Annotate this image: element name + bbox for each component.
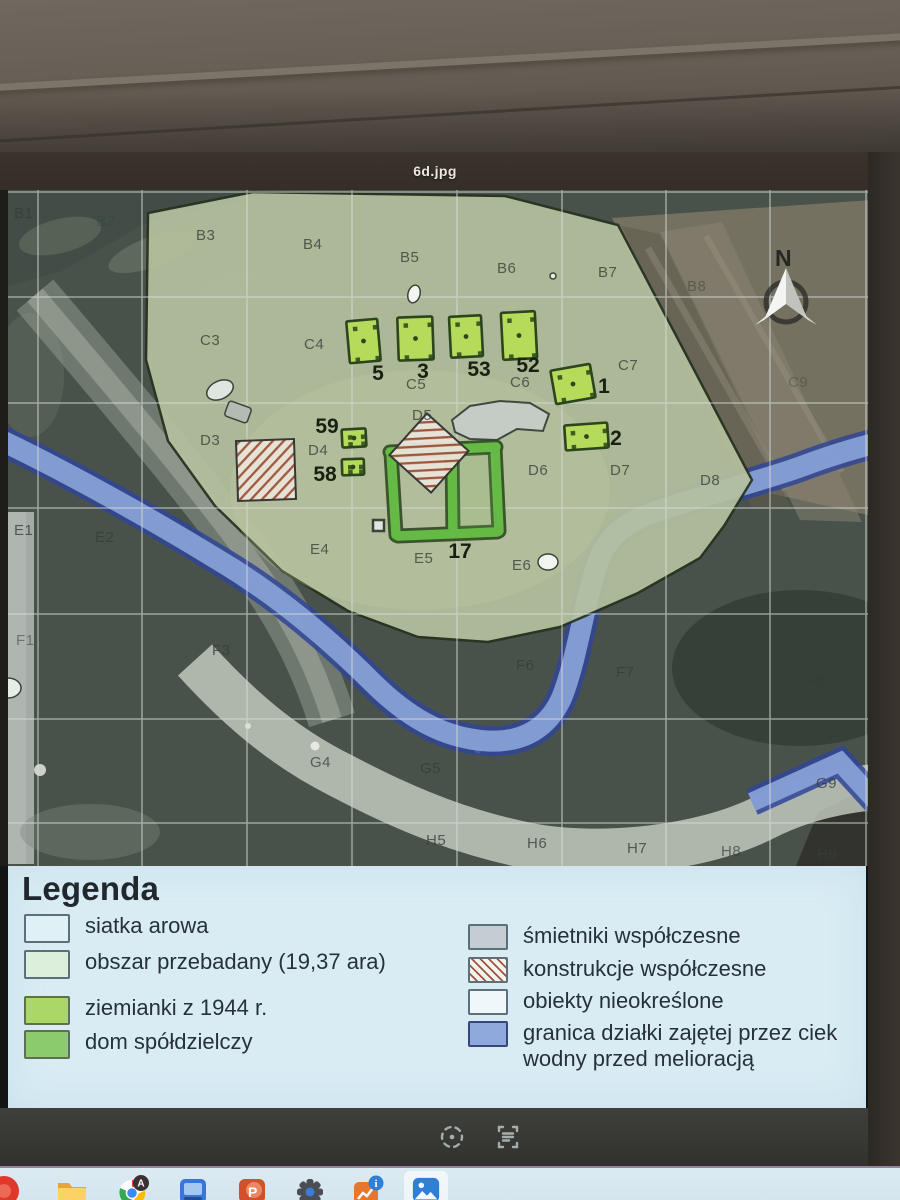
feature-number: 17 (448, 540, 471, 563)
projected-screen-photo: { "window": { "filename": "6d.jpg" }, "c… (0, 0, 900, 1200)
grid-cell-label: C7 (618, 357, 638, 374)
legend-item-smietniki-wspolczesne: śmietniki współczesne (468, 923, 741, 950)
legend-panel: Legenda siatka arowaobszar przebadany (1… (8, 866, 866, 1108)
obiekty-nieokreslone-swatch (468, 989, 508, 1015)
dugout-feature (449, 315, 483, 358)
grid-cell-label: B2 (96, 213, 115, 230)
legend-item-siatka-arowa: siatka arowa (24, 913, 209, 943)
svg-text:A: A (137, 1179, 144, 1190)
dugout-feature (346, 319, 381, 364)
grid-cell-label: H5 (426, 832, 446, 849)
legend-label: obszar przebadany (19,37 ara) (85, 949, 386, 975)
office-info-icon[interactable]: i (352, 1175, 384, 1200)
grid-cell-label: B7 (598, 264, 617, 281)
focus-scan-icon[interactable] (438, 1123, 466, 1151)
powerpoint-icon[interactable]: P (236, 1175, 268, 1200)
site-map: B1B2B3B4B5B6B7B8C3C4C5C6C7C9D3D4D5D6D7D8… (0, 190, 900, 866)
grid-cell-label: H8 (721, 843, 741, 860)
legend-label: śmietniki współczesne (523, 923, 741, 949)
legend-section: Legenda siatka arowaobszar przebadany (1… (0, 866, 900, 1108)
browser-icon[interactable] (0, 1175, 26, 1200)
legend-title: Legenda (22, 870, 159, 908)
svg-text:P: P (248, 1184, 257, 1200)
grid-cell-label: G9 (816, 775, 837, 792)
konstrukcje-wspolczesne-swatch (468, 957, 508, 983)
granica-cieku-wodnego-swatch (468, 1021, 508, 1047)
windows-taskbar: APi (0, 1168, 900, 1200)
grid-cell-label: B6 (497, 260, 516, 277)
feature-number: 2 (610, 427, 622, 450)
grid-cell-label: D8 (700, 472, 720, 489)
wall-shadow (0, 90, 900, 152)
screen-right-bezel (868, 152, 900, 1166)
grid-cell-label: E2 (95, 529, 114, 546)
svg-text:i: i (374, 1178, 377, 1190)
grid-cell-label: E1 (14, 522, 33, 539)
legend-label: konstrukcje współczesne (523, 956, 766, 982)
chrome-icon[interactable]: A (118, 1175, 150, 1200)
feature-number: 59 (315, 415, 338, 438)
media-app-icon[interactable] (177, 1175, 209, 1200)
grid-cell-label: F3 (212, 642, 231, 659)
grid-cell-label: B3 (196, 227, 215, 244)
legend-item-ziemianki-1944: ziemianki z 1944 r. (24, 995, 267, 1025)
grid-cell-label: G4 (310, 754, 331, 771)
smietniki-wspolczesne-swatch (468, 924, 508, 950)
feature-number: 52 (516, 354, 539, 377)
dom-spoldzielczy-swatch (24, 1030, 70, 1059)
feature-number: 1 (598, 375, 610, 398)
grid-cell-label: C9 (788, 374, 808, 391)
legend-label: obiekty nieokreślone (523, 988, 724, 1014)
grid-cell-label: H9 (817, 846, 837, 863)
dugout-feature (342, 459, 365, 476)
legend-label: granica działki zajętej przez ciek wodny… (523, 1020, 866, 1073)
wall-molding (0, 31, 900, 92)
settings-gear-icon[interactable] (294, 1175, 326, 1200)
screen-left-bezel (0, 190, 8, 866)
legend-label: ziemianki z 1944 r. (85, 995, 267, 1021)
grid-cell-label: E5 (414, 550, 433, 567)
grid-cell-label: F9 (806, 673, 825, 690)
dugout-feature (397, 316, 433, 360)
image-viewer-titlebar: 6d.jpg (0, 152, 900, 190)
grid-cell-label: H7 (627, 840, 647, 857)
grid-cell-label: G5 (420, 760, 441, 777)
grid-cell-label: D5 (412, 407, 432, 424)
feature-number: 5 (372, 362, 384, 385)
text-extract-icon[interactable] (494, 1123, 522, 1151)
grid-cell-label: B1 (14, 205, 33, 222)
legend-item-obszar-przebadany: obszar przebadany (19,37 ara) (24, 949, 386, 979)
grid-cell-label: F7 (616, 664, 635, 681)
dugout-feature (342, 428, 367, 447)
grid-cell-label: E4 (310, 541, 329, 558)
dugout-feature (550, 364, 595, 404)
grid-cell-label: B8 (687, 278, 706, 295)
grid-cell-label: D4 (308, 442, 328, 459)
feature-number: 58 (313, 463, 337, 486)
file-explorer-icon[interactable] (56, 1175, 88, 1200)
feature-number: 3 (417, 360, 429, 383)
legend-item-obiekty-nieokreslone: obiekty nieokreślone (468, 988, 724, 1015)
grid-cell-label: B5 (400, 249, 419, 266)
grid-cell-label: C3 (200, 332, 220, 349)
dugout-feature (564, 423, 609, 451)
feature-number: 53 (467, 358, 490, 381)
wall-background (0, 0, 900, 152)
siatka-arowa-swatch (24, 914, 70, 943)
legend-item-dom-spoldzielczy: dom spółdzielczy (24, 1029, 253, 1059)
grid-cell-label: F6 (516, 657, 535, 674)
grid-cell-label: H6 (527, 835, 547, 852)
grid-cell-label: D6 (528, 462, 548, 479)
modern-constructions (236, 439, 296, 501)
obszar-przebadany-swatch (24, 950, 70, 979)
dugout-feature (501, 311, 537, 360)
grid-cell-label: D3 (200, 432, 220, 449)
viewer-toolbar (0, 1108, 900, 1166)
grid-cell-label: D7 (610, 462, 630, 479)
ziemianki-1944-swatch (24, 996, 70, 1025)
legend-label: dom spółdzielczy (85, 1029, 253, 1055)
north-label: N (775, 245, 792, 271)
grid-cell-label: C4 (304, 336, 324, 353)
grid-cell-label: E6 (512, 557, 531, 574)
legend-item-konstrukcje-wspolczesne: konstrukcje współczesne (468, 956, 766, 983)
photos-icon[interactable] (404, 1171, 448, 1200)
legend-item-granica-cieku-wodnego: granica działki zajętej przez ciek wodny… (468, 1020, 866, 1073)
legend-label: siatka arowa (85, 913, 209, 939)
image-filename: 6d.jpg (413, 163, 457, 179)
grid-cell-label: B4 (303, 236, 322, 253)
grid-cell-label: F1 (16, 632, 35, 649)
